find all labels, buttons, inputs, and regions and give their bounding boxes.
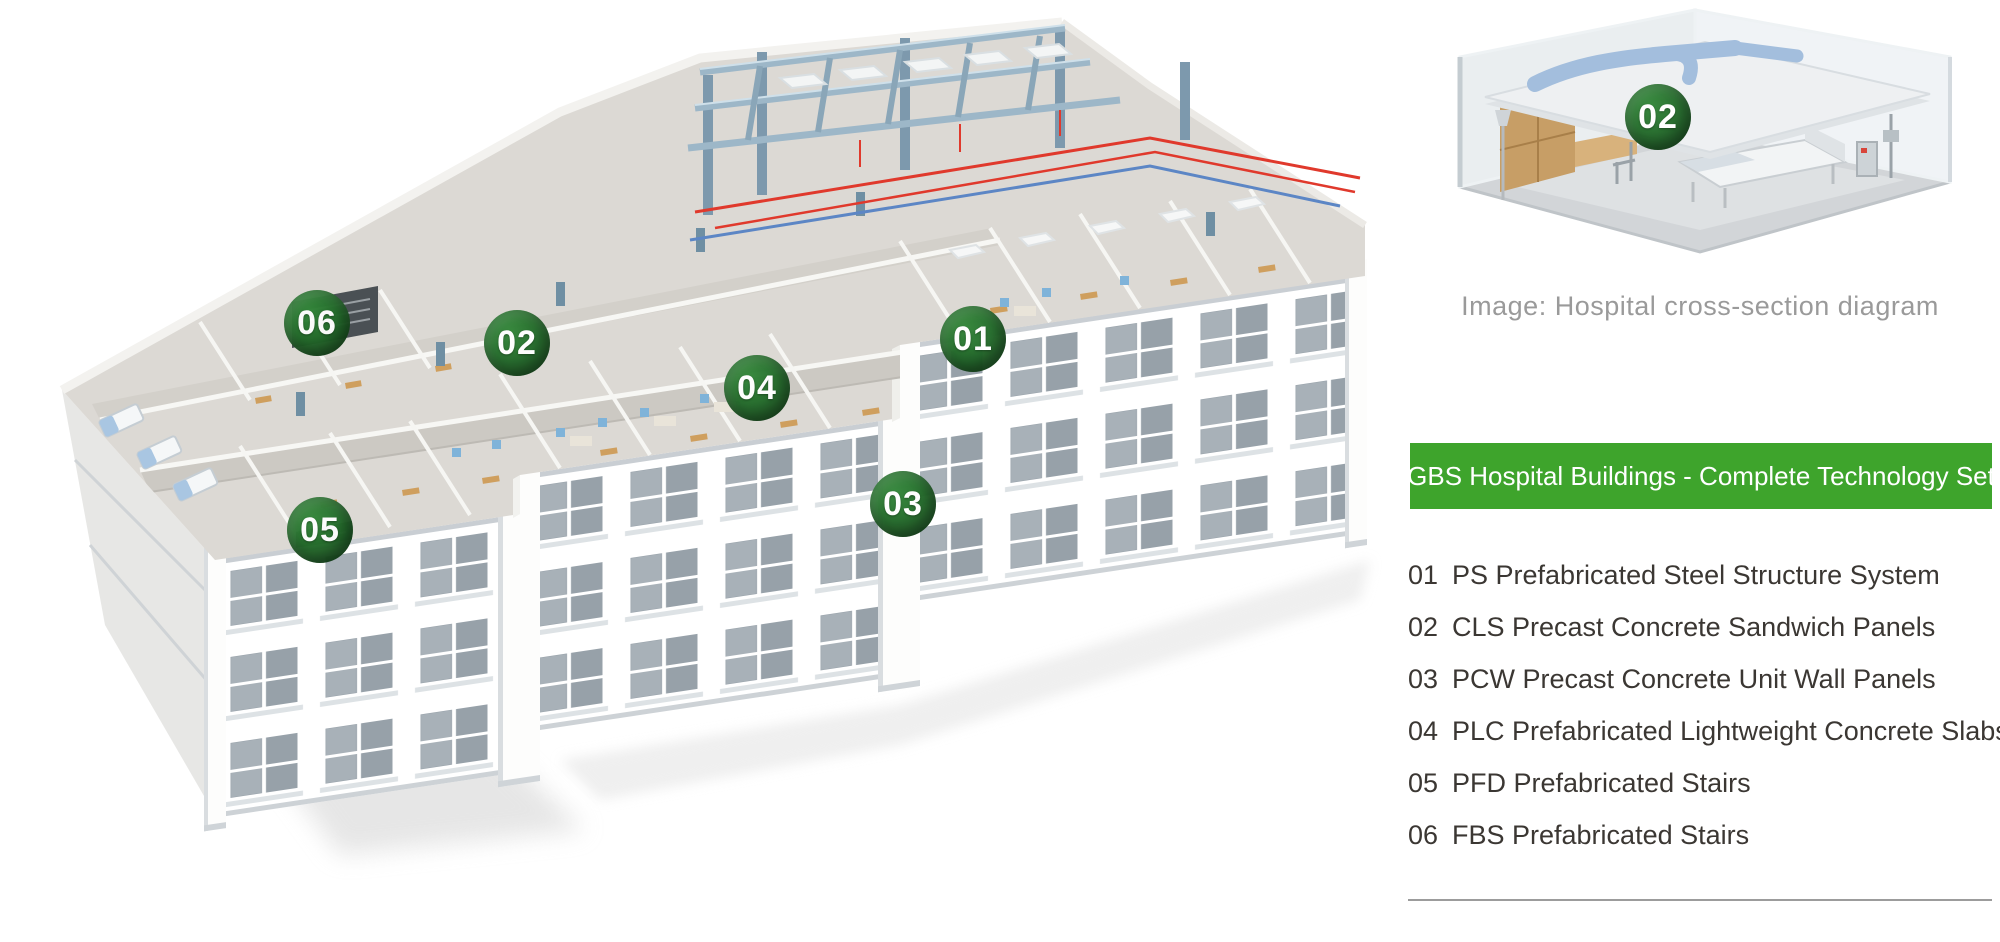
legend-item-label: PCW Precast Concrete Unit Wall Panels xyxy=(1452,664,1936,695)
legend-divider xyxy=(1408,899,1992,901)
legend-item-number: 02 xyxy=(1408,612,1452,643)
hospital-building-cutaway-illustration xyxy=(0,0,1400,942)
legend-item-label: FBS Prefabricated Stairs xyxy=(1452,820,1749,851)
side-image-caption: Image: Hospital cross-section diagram xyxy=(1425,291,1975,327)
legend-item-label: PFD Prefabricated Stairs xyxy=(1452,768,1751,799)
marker-06: 06 xyxy=(284,290,350,356)
legend-item-06: 06 FBS Prefabricated Stairs xyxy=(1408,809,1994,861)
legend-item-number: 04 xyxy=(1408,716,1452,747)
legend-item-02: 02 CLS Precast Concrete Sandwich Panels xyxy=(1408,601,1994,653)
legend-item-05: 05 PFD Prefabricated Stairs xyxy=(1408,757,1994,809)
legend-item-label: CLS Precast Concrete Sandwich Panels xyxy=(1452,612,1935,643)
side-image-marker-02: 02 xyxy=(1625,84,1691,150)
legend-list: 01 PS Prefabricated Steel Structure Syst… xyxy=(1408,549,1994,861)
legend-item-number: 06 xyxy=(1408,820,1452,851)
marker-02: 02 xyxy=(484,310,550,376)
marker-03: 03 xyxy=(870,471,936,537)
infographic-root: 01 02 03 04 05 06 xyxy=(0,0,2000,942)
legend-item-number: 03 xyxy=(1408,664,1452,695)
legend-item-01: 01 PS Prefabricated Steel Structure Syst… xyxy=(1408,549,1994,601)
legend-item-label: PS Prefabricated Steel Structure System xyxy=(1452,560,1940,591)
hospital-room-cross-section-image xyxy=(1425,2,1975,267)
title-banner: GBS Hospital Buildings - Complete Techno… xyxy=(1410,443,1992,509)
marker-04: 04 xyxy=(724,355,790,421)
legend-item-04: 04 PLC Prefabricated Lightweight Concret… xyxy=(1408,705,1994,757)
marker-01: 01 xyxy=(940,306,1006,372)
legend-item-label: PLC Prefabricated Lightweight Concrete S… xyxy=(1452,716,2000,747)
legend-item-number: 05 xyxy=(1408,768,1452,799)
legend-item-number: 01 xyxy=(1408,560,1452,591)
legend-item-03: 03 PCW Precast Concrete Unit Wall Panels xyxy=(1408,653,1994,705)
marker-05: 05 xyxy=(287,497,353,563)
